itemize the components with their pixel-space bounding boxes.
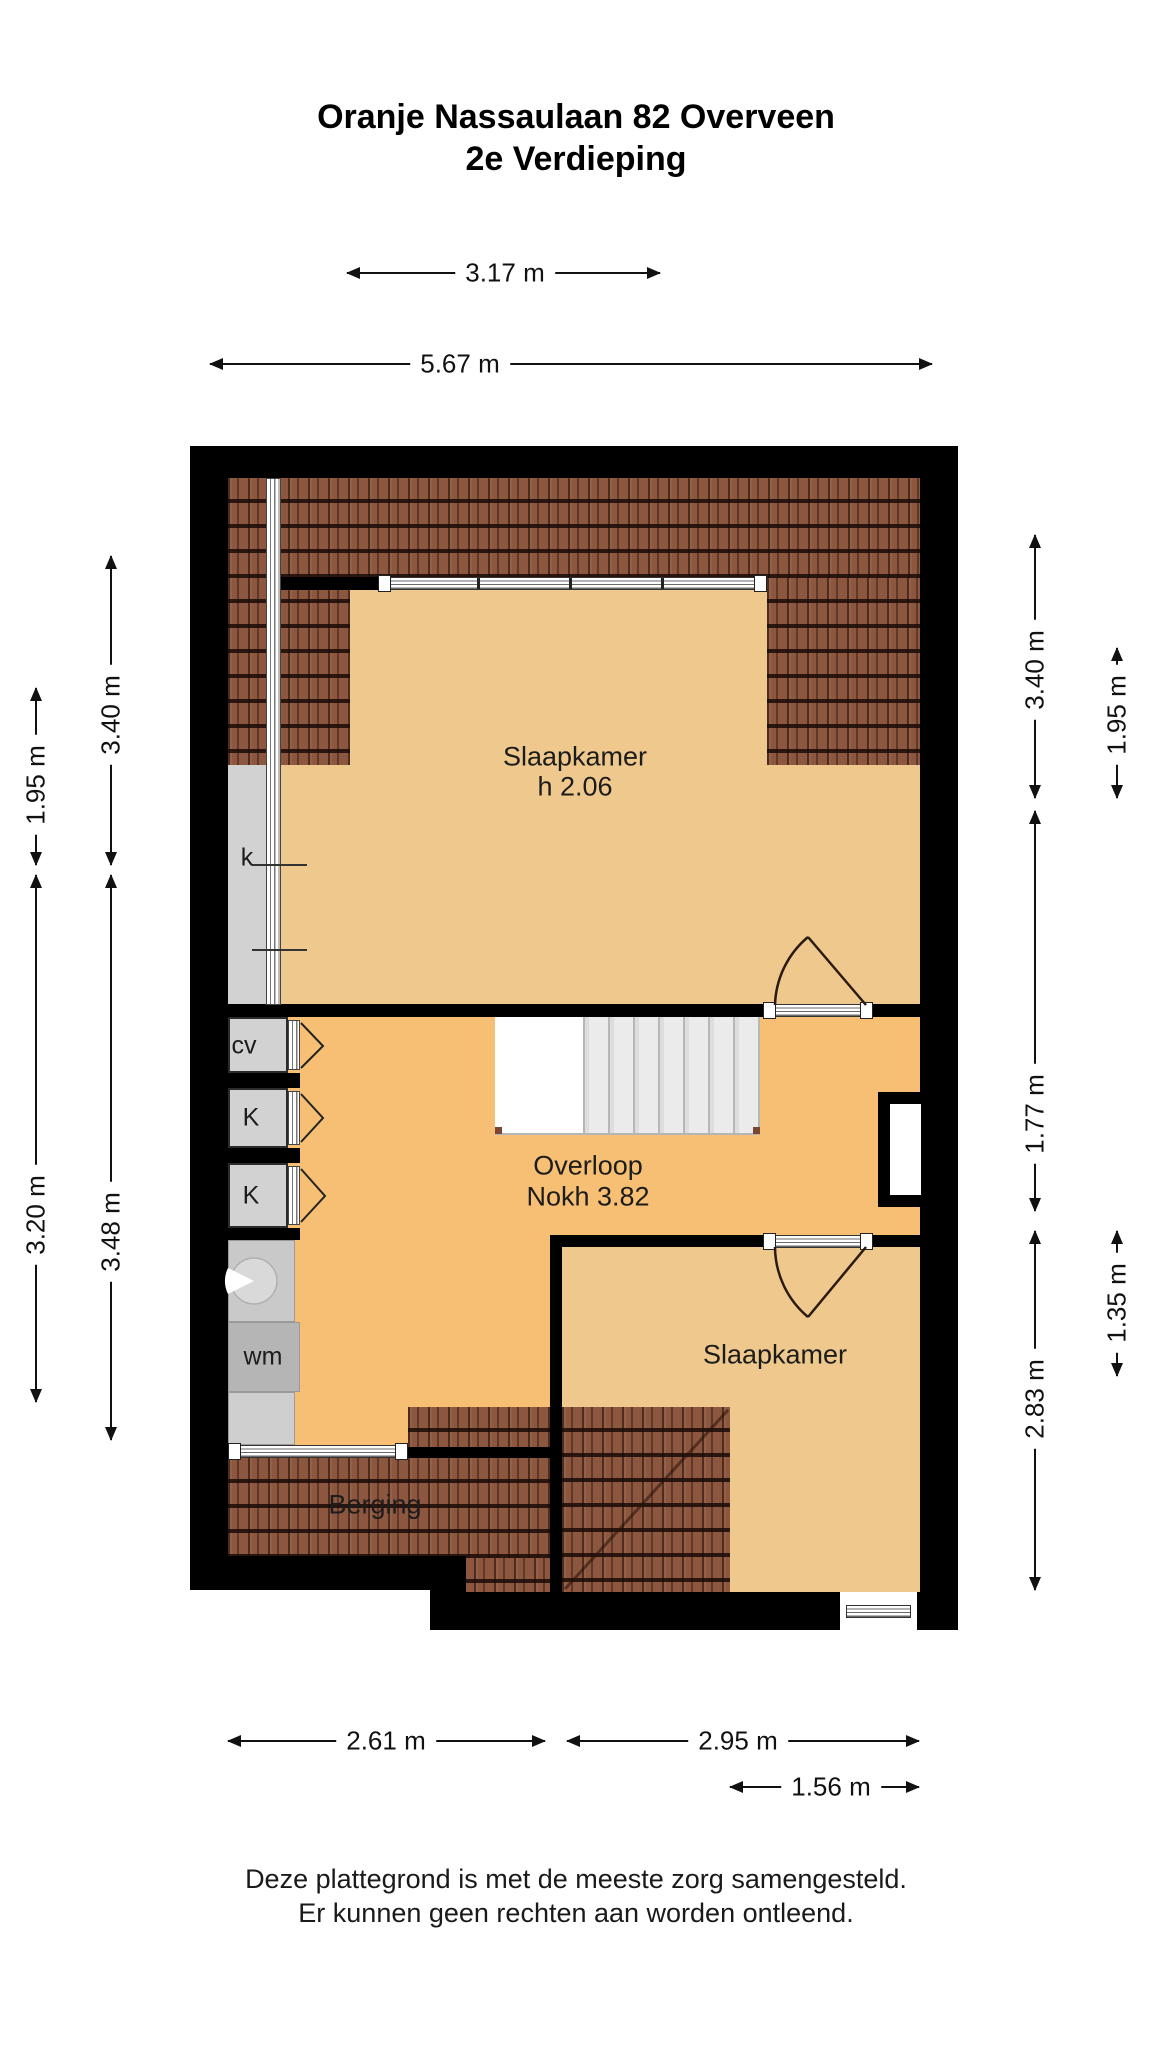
roof-area-top-right — [767, 578, 920, 765]
fixture-label-wm: wm — [244, 1343, 283, 1372]
dimension-top-317: 3.17 m — [347, 272, 660, 274]
chimney-niche — [890, 1104, 921, 1195]
page-title-line1: Oranje Nassaulaan 82 Overveen — [0, 96, 1152, 138]
dimension-label: 3.40 m — [96, 665, 127, 765]
closet-separator — [228, 1073, 300, 1088]
page-title-line2: 2e Verdieping — [0, 138, 1152, 180]
dimension-label: 1.95 m — [21, 735, 52, 835]
dimension-right-195: 1.95 m — [1116, 648, 1118, 798]
door-top-jamb-right — [860, 1002, 873, 1019]
disclaimer-line2: Er kunnen geen rechten aan worden ontlee… — [0, 1896, 1152, 1930]
window-top-jamb-left — [378, 575, 391, 592]
stair-post-right — [753, 1127, 760, 1134]
window-top-jamb-right — [754, 575, 767, 592]
window-storage-band — [240, 1445, 396, 1458]
room-label-bedroom-top-height: h 2.06 — [537, 772, 612, 803]
roof-area-storage-upper — [408, 1407, 550, 1447]
wall-bottom-step — [430, 1556, 466, 1630]
fixture-label-k1: K — [243, 1104, 260, 1133]
wall-bottom-left — [190, 1556, 434, 1590]
door-top-jamb-left — [763, 1002, 776, 1019]
dimension-left-320: 3.20 m — [35, 875, 37, 1402]
dimension-label: 1.35 m — [1102, 1253, 1133, 1353]
dimension-label: 3.48 m — [96, 1182, 127, 1282]
room-label-bedroom-top: Slaapkamer — [503, 742, 647, 773]
closet-separator — [228, 1228, 300, 1240]
window-storage-jamb-left — [228, 1443, 241, 1460]
dimension-label: 3.40 m — [1020, 620, 1051, 720]
dimension-label: 5.67 m — [410, 349, 510, 380]
door-bottom-threshold — [775, 1235, 861, 1248]
fixture-label-cv: cv — [232, 1032, 257, 1061]
wall-low-left — [550, 1235, 763, 1247]
knee-wall-ledge — [228, 763, 268, 1005]
folding-door-k1 — [288, 1091, 300, 1145]
shower-tray — [228, 1240, 295, 1322]
dimension-left-195: 1.95 m — [35, 688, 37, 865]
roof-area-top — [228, 478, 920, 578]
dimension-bottom-295: 2.95 m — [567, 1740, 919, 1742]
folding-door-k2 — [288, 1166, 300, 1225]
wall-low-right — [873, 1235, 920, 1247]
floorplan-page: Oranje Nassaulaan 82 Overveen 2e Verdiep… — [0, 0, 1152, 2048]
fixture-label-k2: K — [243, 1182, 260, 1211]
roof-area-bedroom-bottom — [562, 1407, 730, 1592]
stair-treads — [583, 1017, 760, 1133]
fixture-label-dormer: k — [241, 844, 254, 873]
staircase — [495, 1017, 760, 1135]
wall-left — [190, 446, 228, 1590]
wall-right — [920, 446, 958, 1630]
counter-strip — [228, 1392, 295, 1445]
window-mullion — [569, 578, 572, 589]
dimension-label: 1.56 m — [781, 1772, 881, 1803]
dimension-label: 1.95 m — [1102, 665, 1133, 765]
dimension-top-567: 5.67 m — [210, 363, 932, 365]
dimension-right-340: 3.40 m — [1034, 535, 1036, 798]
window-top-band — [390, 577, 755, 590]
window-mullion — [477, 578, 480, 589]
window-bottom-band — [846, 1605, 911, 1618]
room-label-storage: Berging — [328, 1490, 421, 1521]
disclaimer-line1: Deze plattegrond is met de meeste zorg s… — [0, 1862, 1152, 1896]
window-mullion — [661, 578, 664, 589]
dimension-label: 2.95 m — [688, 1726, 788, 1757]
disclaimer: Deze plattegrond is met de meeste zorg s… — [0, 1862, 1152, 1930]
room-label-bedroom-bottom: Slaapkamer — [703, 1340, 847, 1371]
stair-post-left — [495, 1127, 502, 1134]
window-dormer-vertical — [266, 478, 281, 1005]
room-label-landing: Overloop — [533, 1151, 643, 1182]
wall-bedroom-divider — [550, 1247, 562, 1592]
dimension-label: 3.20 m — [21, 1165, 52, 1265]
dimension-bottom-261: 2.61 m — [228, 1740, 545, 1742]
roof-area-top-left — [228, 578, 350, 765]
door-top-threshold — [775, 1004, 861, 1017]
door-bottom-jamb-left — [763, 1233, 776, 1250]
dimension-right-135: 1.35 m — [1116, 1231, 1118, 1376]
folding-door-cv — [288, 1020, 300, 1070]
wall-knee-segment — [281, 577, 378, 590]
dimension-left-348: 3.48 m — [110, 875, 112, 1440]
dimension-left-340: 3.40 m — [110, 556, 112, 865]
room-label-landing-height: Nokh 3.82 — [526, 1182, 649, 1213]
dimension-label: 2.83 m — [1020, 1349, 1051, 1449]
page-title: Oranje Nassaulaan 82 Overveen 2e Verdiep… — [0, 96, 1152, 180]
dimension-label: 2.61 m — [336, 1726, 436, 1757]
dimension-right-177: 1.77 m — [1034, 811, 1036, 1211]
dimension-label: 1.77 m — [1020, 1064, 1051, 1164]
wall-storage — [408, 1447, 550, 1458]
dimension-right-283: 2.83 m — [1034, 1231, 1036, 1590]
window-storage-jamb-right — [395, 1443, 408, 1460]
door-bottom-jamb-right — [860, 1233, 873, 1250]
wall-top — [190, 446, 958, 478]
wall-mid-right — [873, 1004, 920, 1017]
wall-mid-left — [228, 1004, 763, 1017]
dimension-label: 3.17 m — [455, 258, 555, 289]
closet-separator — [228, 1148, 300, 1163]
dimension-bottom-156: 1.56 m — [730, 1786, 919, 1788]
